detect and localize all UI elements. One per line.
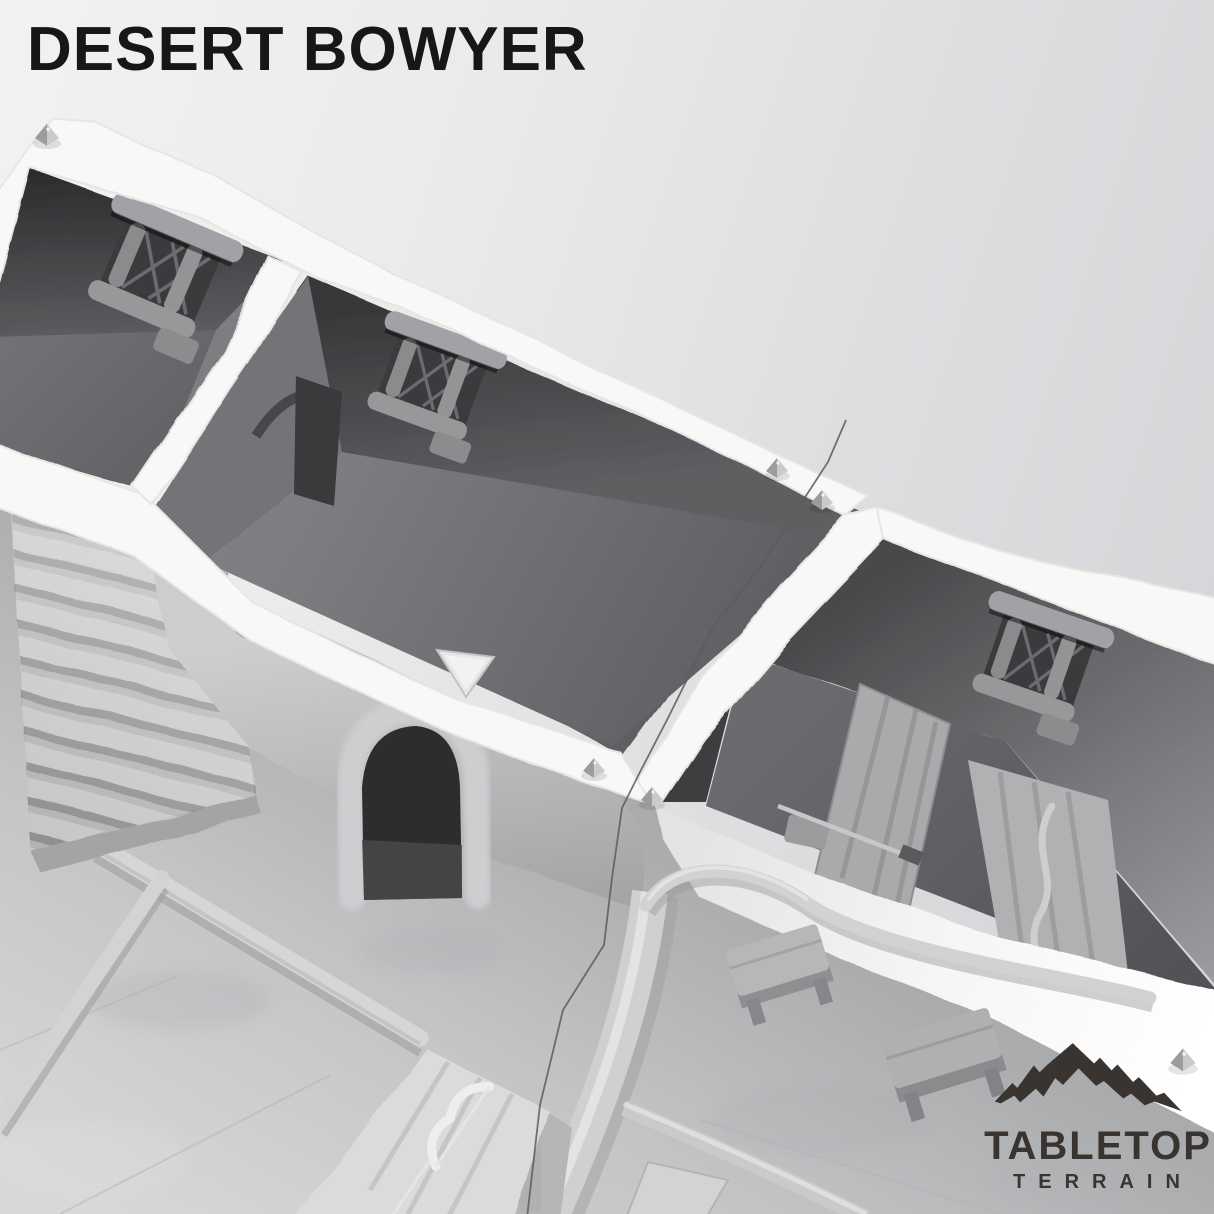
brand-wordmark: TABLETOP (980, 1126, 1214, 1166)
mountain-range-icon (991, 1036, 1205, 1128)
brand-logo: TABLETOP TERRAIN (980, 1036, 1214, 1192)
brand-wordmark-sub: TERRAIN (980, 1172, 1214, 1192)
product-image: DESERT BOWYER TABLETOP TERRAIN (0, 0, 1214, 1214)
arch-pillar (294, 376, 342, 506)
terrain-render (0, 0, 1214, 1214)
page-title: DESERT BOWYER (27, 14, 588, 85)
